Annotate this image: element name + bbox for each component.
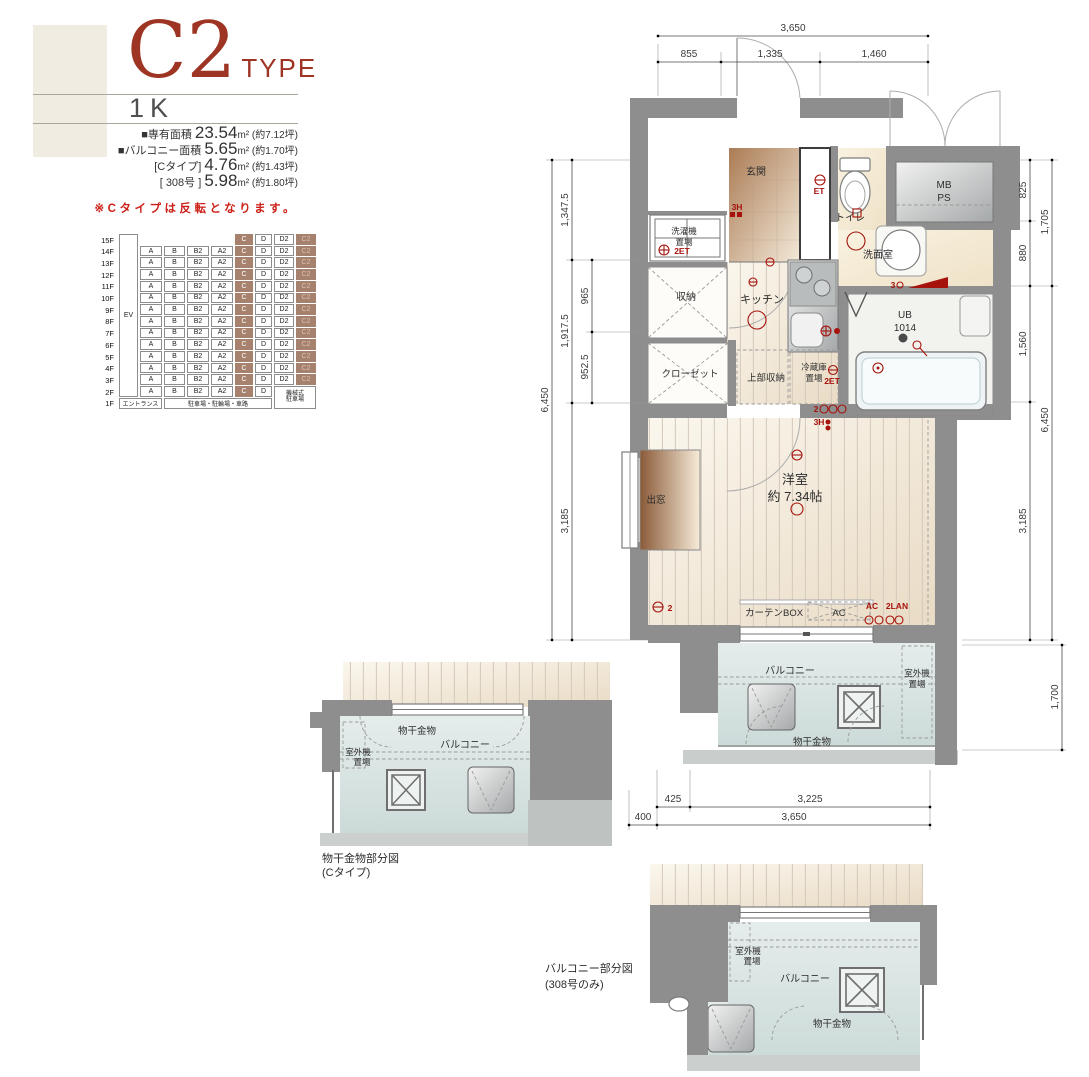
dim-right-total: 6,450 bbox=[1040, 407, 1051, 432]
fridge-label-1: 冷蔵庫 bbox=[801, 362, 827, 372]
ann-et-toilet: ET bbox=[814, 186, 826, 196]
dim-top: 3,650 855 1,335 1,460 bbox=[657, 23, 929, 96]
sub-c-caption-1: 物干金物部分図 bbox=[322, 851, 399, 865]
dim-bottom: 425 3,225 400 3,650 bbox=[628, 770, 931, 830]
sub-308-caption-2: (308号のみ) bbox=[545, 978, 604, 991]
sub-308-laundry-hatch bbox=[840, 968, 884, 1012]
ann-3h-entry: 3H bbox=[732, 202, 743, 212]
dim-right-seg4: 3,185 bbox=[1018, 508, 1029, 533]
shoe-box bbox=[800, 148, 830, 260]
sub-c-escape-hatch bbox=[468, 767, 514, 813]
sub-308-laundry-label: 物干金物 bbox=[813, 1018, 852, 1030]
floor-plan-page: C2 TYPE 1K ■専有面積 23.54m² (約7.12坪)■バルコニー面… bbox=[0, 0, 1089, 1077]
dim-left-seg2: 1,917.5 bbox=[560, 314, 571, 348]
ann-2lan: 2LAN bbox=[886, 601, 908, 611]
dim-bottom-3650: 3,650 bbox=[781, 812, 806, 823]
ann-2et-fridge: 2ET bbox=[824, 376, 840, 386]
upper-storage-label: 上部収納 bbox=[747, 372, 785, 384]
kitchen-counter bbox=[788, 260, 838, 352]
dim-left-seg1: 1,347.5 bbox=[560, 193, 571, 227]
entry-door bbox=[737, 38, 800, 98]
ub-label-2: 1014 bbox=[894, 323, 917, 334]
sub-c-laundry-hatch bbox=[387, 770, 425, 810]
outdoor-unit-label-1: 室外機 bbox=[904, 668, 930, 678]
dim-bottom-400: 400 bbox=[635, 812, 652, 823]
ann-ac: AC bbox=[866, 601, 878, 611]
dim-top-total: 3,650 bbox=[780, 23, 805, 34]
dim-left-total: 6,450 bbox=[540, 387, 551, 412]
toilet-fixture bbox=[840, 158, 870, 213]
mb-ps-box bbox=[896, 162, 993, 222]
genkan-label: 玄関 bbox=[746, 165, 766, 178]
dim-left-inner1: 965 bbox=[580, 287, 591, 304]
sub-c-outdoor-label-2: 置場 bbox=[353, 757, 371, 767]
room-window bbox=[740, 627, 873, 641]
storage-label: 収納 bbox=[676, 290, 696, 303]
room-label-1: 洋室 bbox=[782, 472, 808, 487]
curtain-box-label: カーテンBOX bbox=[745, 608, 804, 619]
washroom-label: 洗面室 bbox=[863, 248, 893, 261]
sub-c-caption-2: (Cタイプ) bbox=[322, 866, 370, 879]
dim-right-outer: 1,705 bbox=[1040, 209, 1051, 234]
ann-2-kitchen: 2 bbox=[814, 404, 819, 414]
dim-bottom-425: 425 bbox=[665, 794, 682, 805]
sub-308-escape-hatch bbox=[708, 1005, 754, 1052]
dim-right-seg1: 825 bbox=[1018, 181, 1029, 198]
sub-diagram-308: 室外機 置場 バルコニー 物干金物 バルコニー部分図 (308号のみ) bbox=[545, 864, 937, 1071]
sub-c-laundry-label: 物干金物 bbox=[398, 725, 437, 737]
dim-bottom-3225: 3,225 bbox=[797, 794, 822, 805]
ps-label: PS bbox=[937, 193, 951, 204]
mb-label: MB bbox=[937, 180, 952, 191]
dim-top-seg3: 1,460 bbox=[861, 49, 886, 60]
bay-window-label: 出窓 bbox=[646, 494, 665, 506]
sub-308-outdoor-label-2: 置場 bbox=[743, 956, 761, 966]
balcony-rim bbox=[683, 750, 958, 764]
escape-hatch bbox=[748, 684, 795, 730]
ub-label-1: UB bbox=[898, 310, 912, 321]
laundry-hw-label: 物干金物 bbox=[793, 736, 832, 748]
main-floor-plan: 玄関 トイレ MB PS 洗面室 洗濯機 置場 収納 キッチン クローゼット 上… bbox=[622, 38, 1020, 765]
dim-left-inner2: 952.5 bbox=[580, 354, 591, 379]
washer-label-1: 洗濯機 bbox=[671, 226, 697, 236]
ann-3-wash: 3 bbox=[891, 280, 896, 290]
ann-2-room: 2 bbox=[668, 603, 673, 613]
plan-graphics: 玄関 トイレ MB PS 洗面室 洗濯機 置場 収納 キッチン クローゼット 上… bbox=[0, 0, 1089, 1077]
dim-right-balcony: 1,700 bbox=[1050, 684, 1061, 709]
fridge-label-2: 置場 bbox=[805, 373, 823, 383]
room-label-2: 約 7.34帖 bbox=[768, 489, 823, 504]
dim-right-seg2: 880 bbox=[1018, 244, 1029, 261]
sub-diagram-c: 物干金物 バルコニー 室外機 置場 物干金物部分図 (Cタイプ) bbox=[310, 662, 612, 879]
ac-label: AC bbox=[832, 608, 845, 619]
sub-c-balcony-label: バルコニー bbox=[440, 739, 490, 751]
sub-c-outdoor-label-1: 室外機 bbox=[345, 747, 371, 757]
sub-308-outdoor-label-1: 室外機 bbox=[735, 946, 761, 956]
dim-right-seg3: 1,560 bbox=[1018, 331, 1029, 356]
dim-left-seg3: 3,185 bbox=[560, 508, 571, 533]
dim-top-seg1: 855 bbox=[681, 49, 698, 60]
laundry-hatch bbox=[838, 686, 880, 728]
outdoor-unit-label-2: 置場 bbox=[908, 679, 926, 689]
balcony-label: バルコニー bbox=[765, 665, 815, 677]
closet-label: クローゼット bbox=[661, 368, 718, 380]
ann-2et-washer: 2ET bbox=[674, 246, 690, 256]
mb-double-door bbox=[890, 91, 1000, 146]
sub-308-balcony-label: バルコニー bbox=[780, 973, 830, 985]
sub-308-caption-1: バルコニー部分図 bbox=[545, 961, 633, 975]
kitchen-label: キッチン bbox=[740, 293, 784, 306]
ann-3h-kitchen: 3H bbox=[814, 417, 825, 427]
dim-top-seg2: 1,335 bbox=[757, 49, 782, 60]
